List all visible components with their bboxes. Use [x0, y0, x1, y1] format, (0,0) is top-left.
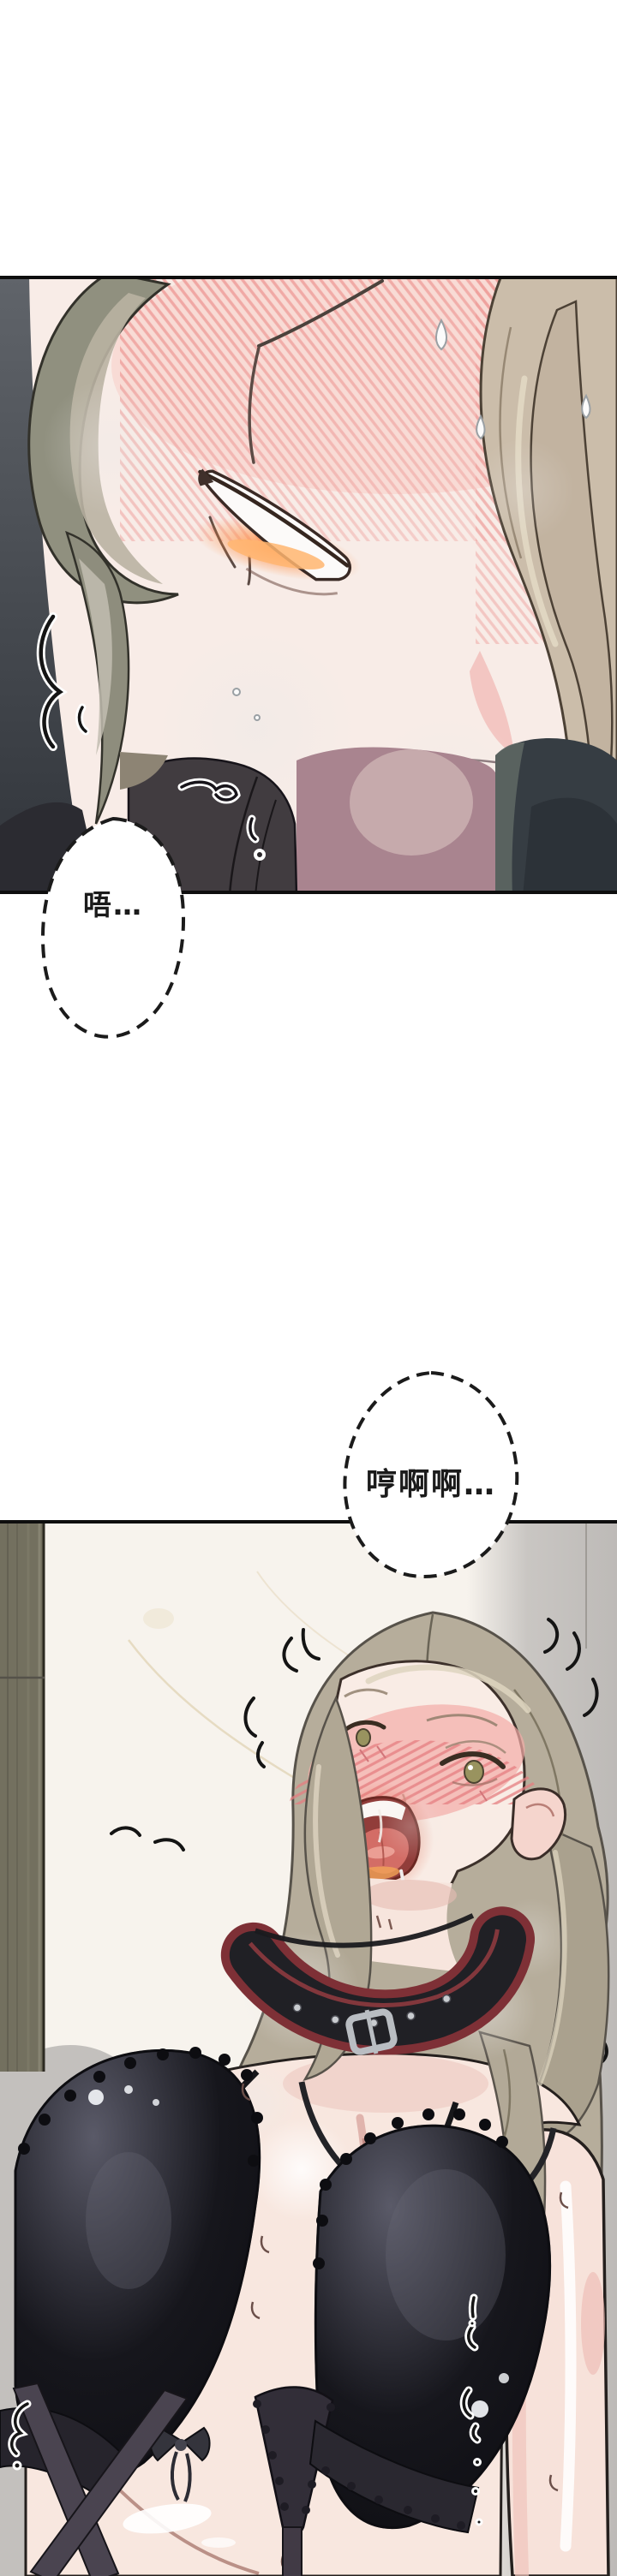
speech-bubble-2: 哼啊啊…	[337, 1368, 525, 1583]
panel-woman-lingerie	[0, 1520, 617, 2576]
panel-face-closeup-art	[0, 276, 617, 894]
panel-face-closeup	[0, 276, 617, 894]
speech-bubble-2-text: 哼啊啊…	[337, 1459, 525, 1504]
pillar	[0, 1524, 45, 2072]
panel-woman-lingerie-art	[0, 1520, 617, 2576]
webtoon-page: 唔… 哼啊啊…	[0, 0, 617, 2576]
speech-bubble-1-text: 唔…	[30, 882, 196, 923]
speech-bubble-1: 唔…	[30, 812, 196, 1045]
panel1-top-border	[0, 276, 617, 279]
speech-bubble-1-outline	[30, 812, 196, 1045]
